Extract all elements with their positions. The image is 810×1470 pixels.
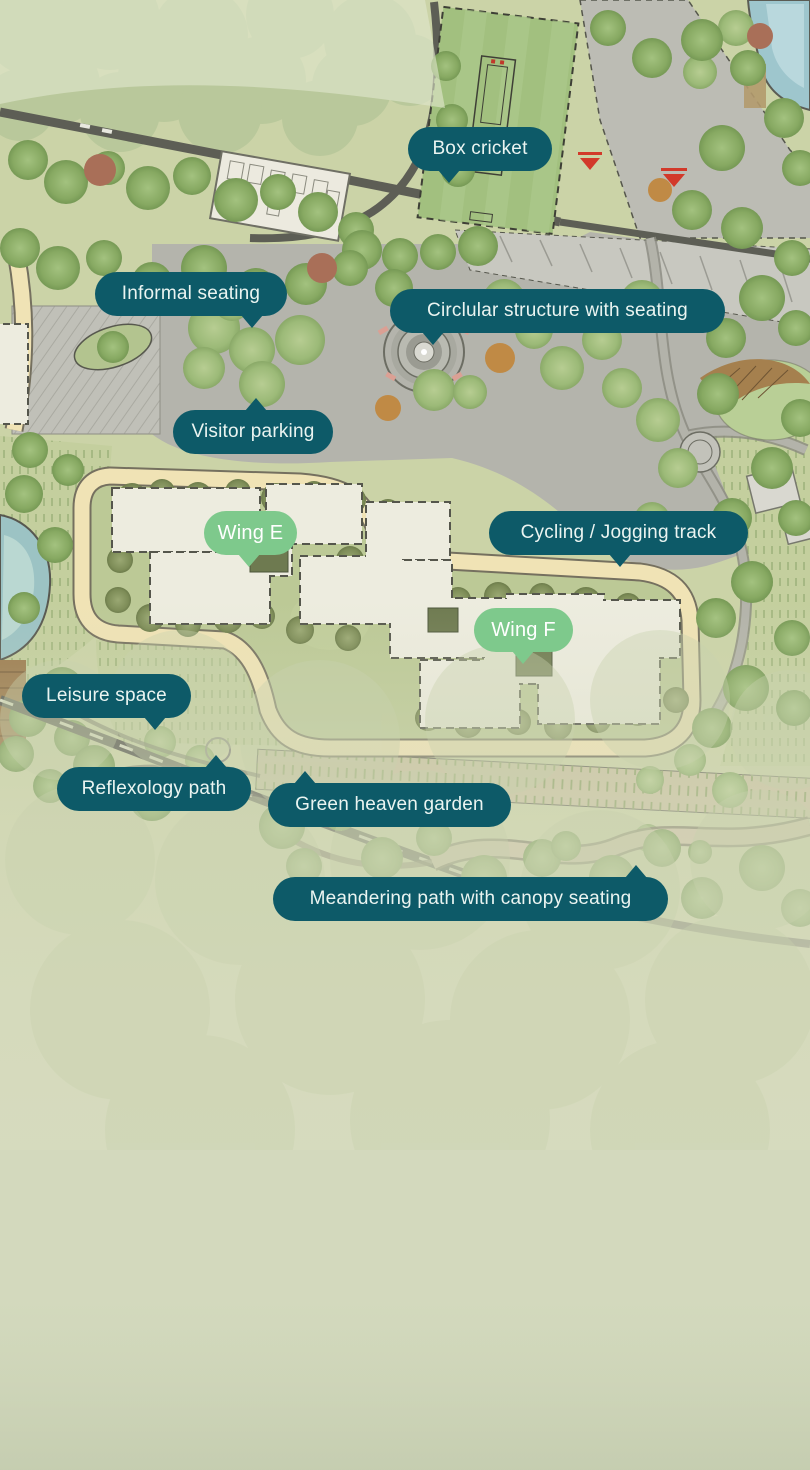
label-text-leisure-space: Leisure space bbox=[46, 685, 167, 707]
label-text-reflexology-path: Reflexology path bbox=[82, 778, 227, 800]
label-tail-informal-seating bbox=[241, 315, 263, 328]
label-green-heaven-garden: Green heaven garden bbox=[268, 783, 511, 827]
label-tail-box-cricket bbox=[438, 170, 460, 183]
label-visitor-parking: Visitor parking bbox=[173, 410, 333, 454]
label-text-wing-e: Wing E bbox=[218, 522, 284, 545]
label-text-circular-structure-with-seating: Circlular structure with seating bbox=[427, 300, 688, 322]
label-wing-e: Wing E bbox=[204, 511, 297, 555]
label-text-meandering-path-with-canopy-seating: Meandering path with canopy seating bbox=[310, 888, 632, 910]
label-text-green-heaven-garden: Green heaven garden bbox=[295, 794, 484, 816]
label-tail-green-heaven-garden bbox=[294, 771, 316, 784]
label-text-cycling-jogging-track: Cycling / Jogging track bbox=[521, 522, 717, 544]
label-box-cricket: Box cricket bbox=[408, 127, 552, 171]
label-text-box-cricket: Box cricket bbox=[432, 138, 527, 160]
label-leisure-space: Leisure space bbox=[22, 674, 191, 718]
label-tail-visitor-parking bbox=[245, 398, 267, 411]
label-informal-seating: Informal seating bbox=[95, 272, 287, 316]
label-text-visitor-parking: Visitor parking bbox=[191, 421, 314, 443]
label-circular-structure-with-seating: Circlular structure with seating bbox=[390, 289, 725, 333]
label-text-informal-seating: Informal seating bbox=[122, 283, 260, 305]
label-reflexology-path: Reflexology path bbox=[57, 767, 251, 811]
label-wing-f: Wing F bbox=[474, 608, 573, 652]
label-meandering-path-with-canopy-seating: Meandering path with canopy seating bbox=[273, 877, 668, 921]
label-text-wing-f: Wing F bbox=[491, 619, 556, 642]
map-labels: Box cricketInformal seatingCirclular str… bbox=[0, 0, 810, 1470]
label-tail-reflexology-path bbox=[205, 755, 227, 768]
label-tail-circular-structure-with-seating bbox=[422, 332, 444, 345]
label-tail-wing-f bbox=[512, 651, 534, 664]
label-cycling-jogging-track: Cycling / Jogging track bbox=[489, 511, 748, 555]
label-tail-leisure-space bbox=[144, 717, 166, 730]
label-tail-meandering-path-with-canopy-seating bbox=[625, 865, 647, 878]
master-plan-canvas: Box cricketInformal seatingCirclular str… bbox=[0, 0, 810, 1470]
label-tail-wing-e bbox=[238, 554, 260, 567]
label-tail-cycling-jogging-track bbox=[609, 554, 631, 567]
